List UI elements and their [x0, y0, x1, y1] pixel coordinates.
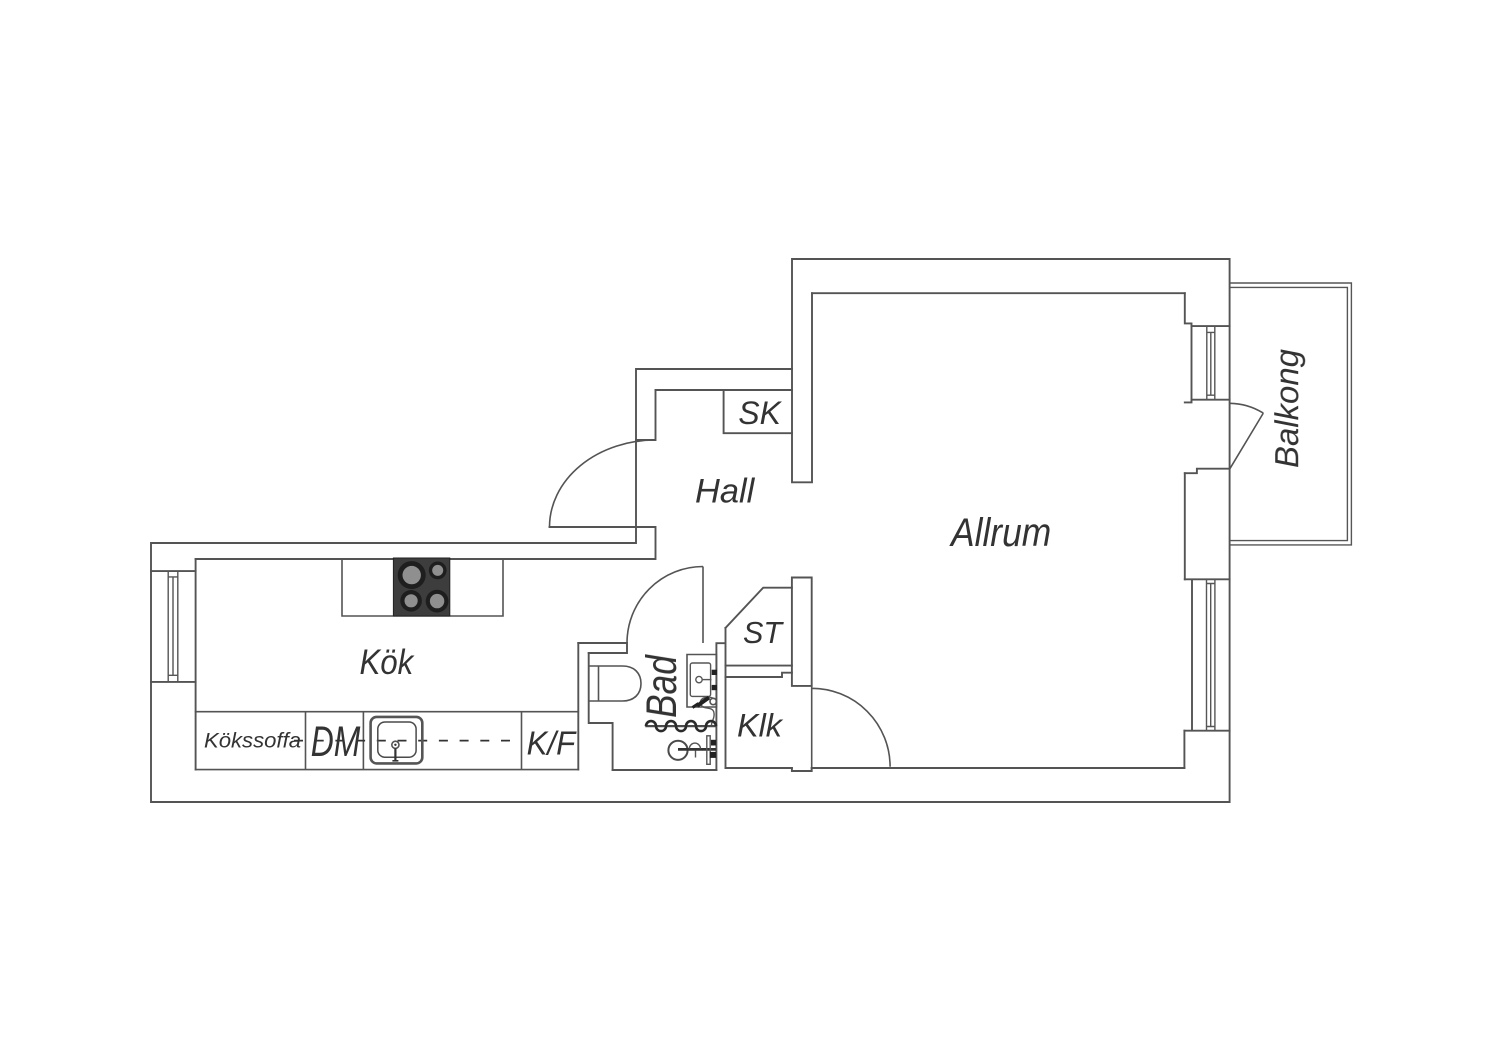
svg-text:Balkong: Balkong: [1269, 349, 1306, 468]
svg-text:SK: SK: [738, 395, 782, 431]
svg-text:Klk: Klk: [737, 707, 784, 743]
svg-text:K/F: K/F: [527, 725, 578, 762]
svg-text:Kökssoffa: Kökssoffa: [204, 729, 301, 753]
svg-text:Bad: Bad: [639, 654, 686, 718]
svg-text:Kök: Kök: [360, 643, 416, 682]
svg-text:Allrum: Allrum: [949, 511, 1051, 555]
svg-text:DM: DM: [311, 719, 361, 766]
svg-text:Hall: Hall: [695, 473, 756, 511]
svg-text:ST: ST: [743, 615, 784, 650]
